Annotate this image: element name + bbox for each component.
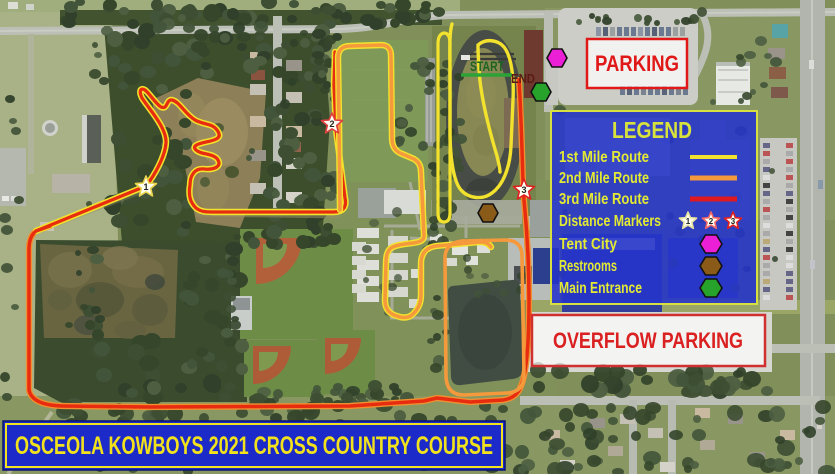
svg-text:LEGEND: LEGEND — [612, 117, 692, 143]
svg-text:Main Entrance: Main Entrance — [559, 280, 642, 297]
svg-text:2: 2 — [329, 119, 334, 129]
svg-text:START: START — [470, 58, 504, 74]
svg-text:OVERFLOW PARKING: OVERFLOW PARKING — [553, 328, 743, 353]
svg-text:3: 3 — [731, 217, 736, 226]
svg-text:PARKING: PARKING — [595, 51, 679, 76]
svg-text:Distance Markers: Distance Markers — [559, 213, 661, 230]
svg-text:3rd Mile Route: 3rd Mile Route — [559, 191, 649, 208]
svg-text:END: END — [511, 71, 535, 86]
svg-text:1: 1 — [686, 217, 691, 226]
svg-text:3: 3 — [521, 185, 526, 195]
svg-text:2: 2 — [709, 217, 714, 226]
svg-text:2nd Mile Route: 2nd Mile Route — [559, 170, 649, 187]
svg-text:Restrooms: Restrooms — [559, 258, 617, 275]
svg-text:1: 1 — [143, 182, 148, 192]
svg-text:OSCEOLA KOWBOYS 2021 CROSS COU: OSCEOLA KOWBOYS 2021 CROSS COUNTRY COURS… — [15, 432, 493, 460]
svg-text:1st Mile Route: 1st Mile Route — [559, 149, 649, 166]
svg-text:Tent City: Tent City — [559, 236, 617, 253]
